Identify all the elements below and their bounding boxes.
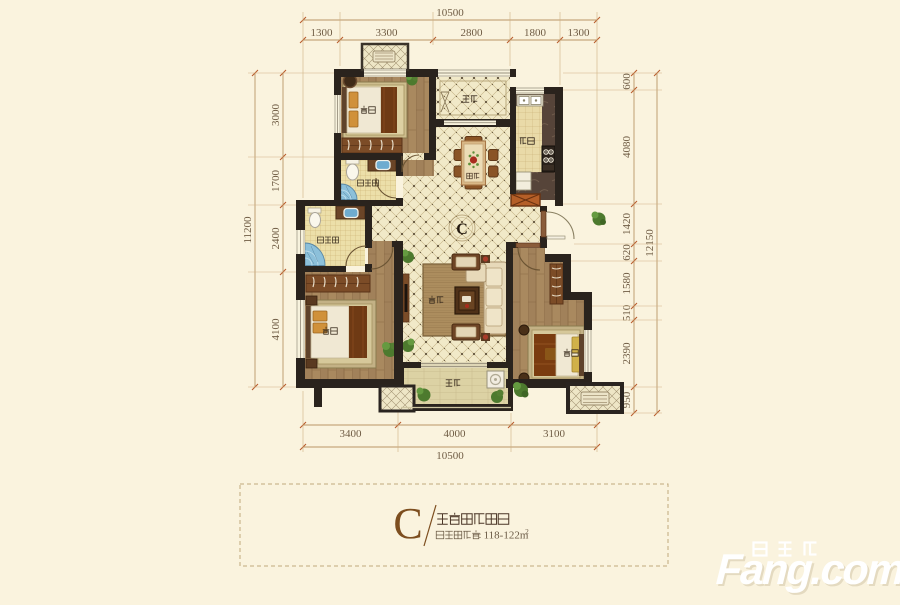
svg-text:1420: 1420	[621, 213, 633, 236]
svg-text:4000: 4000	[444, 428, 467, 440]
svg-text:1580: 1580	[621, 272, 633, 295]
svg-text:Fang.com: Fang.com	[715, 546, 900, 594]
svg-text:2800: 2800	[461, 27, 484, 39]
svg-text:4100: 4100	[270, 318, 282, 341]
svg-text:4080: 4080	[621, 136, 633, 159]
svg-text:10500: 10500	[436, 450, 464, 462]
svg-text:3400: 3400	[340, 428, 363, 440]
svg-text:2390: 2390	[621, 342, 633, 365]
svg-text:600: 600	[621, 73, 633, 90]
svg-text:C: C	[456, 221, 468, 238]
svg-text:1800: 1800	[524, 27, 547, 39]
svg-text:3300: 3300	[376, 27, 399, 39]
svg-text:118-122m: 118-122m	[484, 530, 529, 542]
svg-text:12150: 12150	[644, 229, 656, 257]
svg-text:620: 620	[621, 244, 633, 261]
svg-text:1300: 1300	[311, 27, 334, 39]
svg-text:11200: 11200	[242, 216, 254, 244]
svg-text:10500: 10500	[436, 7, 464, 19]
svg-text::: :	[479, 530, 482, 540]
svg-text:3100: 3100	[543, 428, 566, 440]
svg-text:3000: 3000	[270, 104, 282, 127]
svg-text:1300: 1300	[568, 27, 591, 39]
svg-text:1700: 1700	[270, 170, 282, 193]
svg-text:2: 2	[525, 528, 529, 536]
svg-text:C: C	[393, 499, 422, 548]
svg-text:510: 510	[621, 304, 633, 321]
svg-text:2400: 2400	[270, 227, 282, 250]
